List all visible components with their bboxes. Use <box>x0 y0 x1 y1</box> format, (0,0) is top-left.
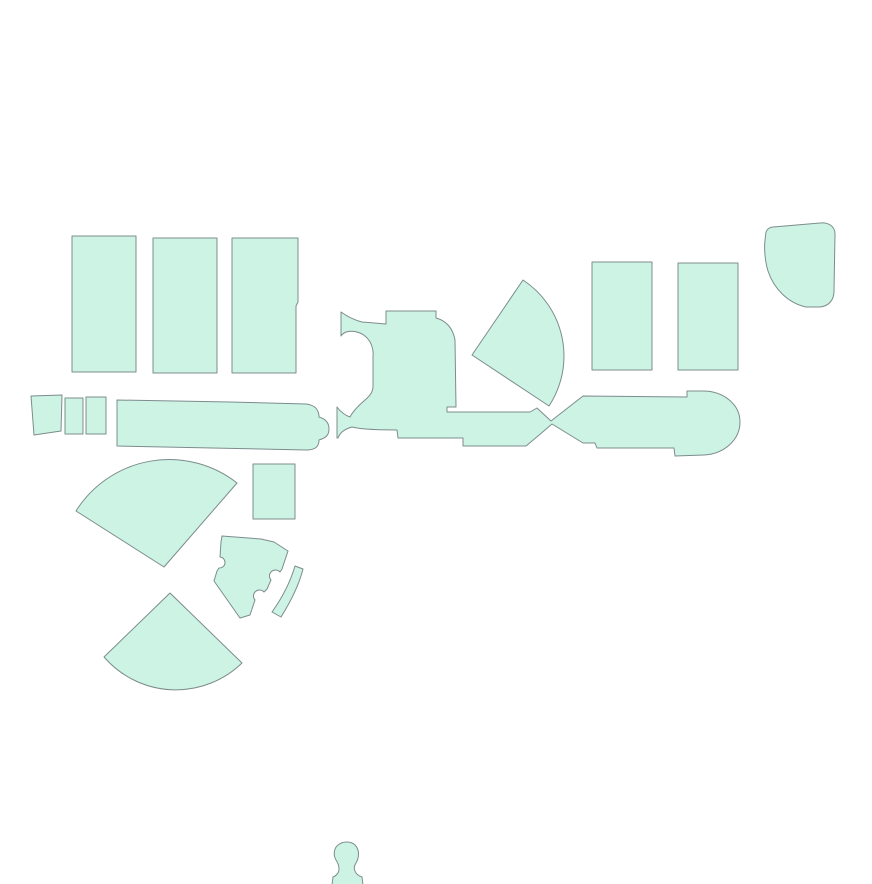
map-region-small-block-west-3[interactable] <box>86 397 106 434</box>
map-region-block-northwest-1[interactable] <box>72 236 136 372</box>
map-region-small-block-center[interactable] <box>253 464 295 519</box>
venue-map-stage <box>0 0 872 884</box>
map-region-small-block-west-1[interactable] <box>31 395 62 435</box>
map-region-block-northwest-2[interactable] <box>153 238 217 373</box>
map-region-concourse-west[interactable] <box>117 400 329 450</box>
map-region-small-block-west-2[interactable] <box>65 398 83 434</box>
map-region-block-northeast-1[interactable] <box>592 262 652 370</box>
map-region-block-northwest-3[interactable] <box>232 238 298 373</box>
venue-map-canvas <box>0 0 872 884</box>
map-region-block-northeast-2[interactable] <box>678 263 738 370</box>
